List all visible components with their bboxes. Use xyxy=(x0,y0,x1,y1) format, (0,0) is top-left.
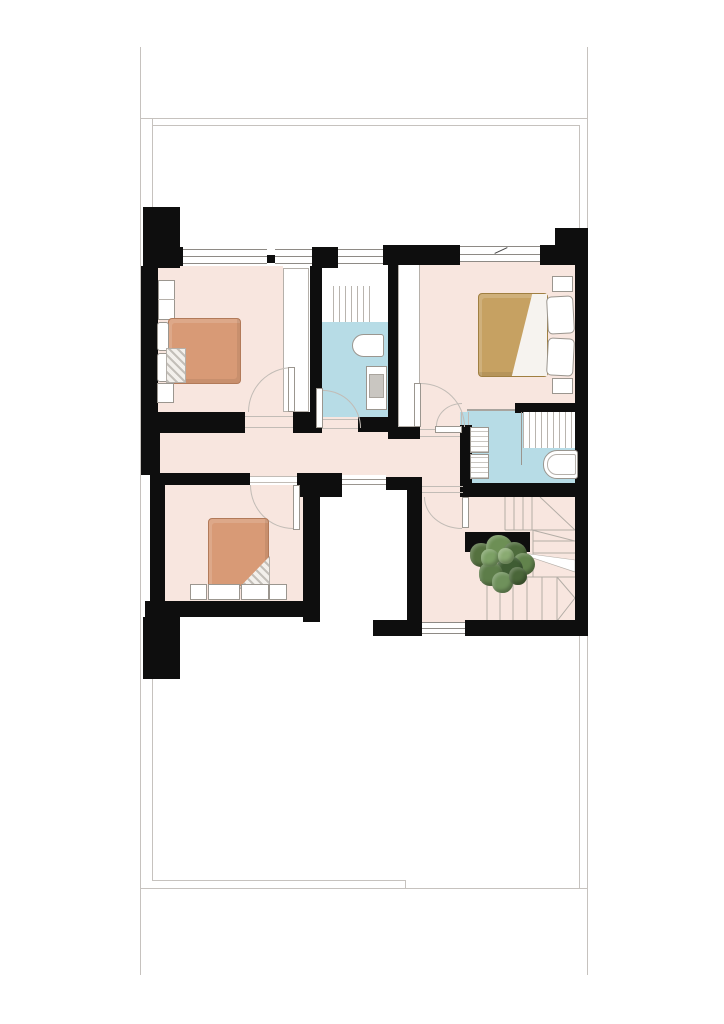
outline-top-inner xyxy=(152,125,580,126)
plant-foliage-blob xyxy=(509,567,527,585)
threshold-bedroom2 xyxy=(250,482,297,483)
wall-bedroom2-west xyxy=(150,473,165,603)
outline-bottom-outer xyxy=(140,888,588,889)
window-master xyxy=(460,246,540,262)
threshold-bedroom1 xyxy=(245,427,293,428)
outline-left-outer xyxy=(140,47,141,975)
vanity-sink xyxy=(470,454,489,479)
nightstand xyxy=(552,378,573,394)
plant-foliage-blob xyxy=(481,549,499,567)
nightstand xyxy=(552,276,573,292)
outline-bottom-inner xyxy=(152,880,405,881)
pillow xyxy=(546,295,575,334)
wall-bedroom2-east xyxy=(303,473,320,622)
door-leaf-landing xyxy=(462,497,469,528)
void-railing-line xyxy=(342,484,386,485)
shower xyxy=(333,286,373,322)
threshold-landing xyxy=(422,492,463,493)
wall-bedroom2-north xyxy=(150,473,250,485)
floor-plan xyxy=(0,0,724,1024)
threshold-bedroom1 xyxy=(245,416,293,417)
threshold-bath-center xyxy=(322,428,358,429)
threshold-bath-right xyxy=(468,412,469,425)
folded-blanket xyxy=(166,348,186,383)
partition-master-bath xyxy=(467,409,515,411)
pillow xyxy=(208,584,240,600)
washbasin xyxy=(352,334,384,357)
shower-partition xyxy=(521,412,522,465)
wall-void-east xyxy=(407,477,422,636)
outline-step xyxy=(405,880,406,889)
wall-east xyxy=(575,228,588,636)
plant-foliage-blob xyxy=(498,548,514,564)
shower xyxy=(523,412,575,448)
window-landing xyxy=(422,622,465,634)
wall-north-segment-3 xyxy=(383,245,460,265)
threshold-master xyxy=(420,436,460,437)
door-leaf-bath-right xyxy=(435,426,462,433)
closet xyxy=(158,280,175,320)
nightstand xyxy=(269,584,287,600)
window-bedroom1-b xyxy=(275,249,312,264)
nightstand xyxy=(190,584,207,600)
outline-top-outer xyxy=(140,118,588,119)
void-railing-line xyxy=(342,479,386,480)
void-railing xyxy=(342,475,386,489)
window-bathroom-center xyxy=(338,249,383,264)
nightstand xyxy=(157,383,174,403)
vanity-sink xyxy=(470,427,489,453)
window-bedroom1-a xyxy=(183,249,267,264)
wall-bedroom1-south-west xyxy=(158,412,245,433)
wall-stub-bottom-left xyxy=(143,617,180,679)
bathtub-inner xyxy=(547,454,576,475)
wall-south-segment-2 xyxy=(465,620,587,636)
void-open-below xyxy=(320,477,407,635)
plant xyxy=(465,533,529,595)
door-leaf-bedroom1 xyxy=(288,367,295,412)
wall-master-south-west xyxy=(388,427,420,439)
wall-bath-center-south xyxy=(358,417,388,432)
pillow xyxy=(157,322,169,351)
wall-void-north-east xyxy=(386,477,407,490)
door-leaf-bath-center xyxy=(316,388,323,428)
wall-south-segment-1 xyxy=(373,620,422,636)
door-leaf-master xyxy=(414,383,421,427)
wall-stair-north xyxy=(463,483,575,497)
wall-north-segment-4 xyxy=(540,245,580,265)
wall-north-segment-2 xyxy=(312,247,338,268)
wall-bedroom2-south xyxy=(145,601,315,617)
toilet-seat xyxy=(369,374,384,398)
wall-north-segment-1 xyxy=(155,247,183,266)
closet-divider xyxy=(158,299,175,300)
wall-bath-center-east xyxy=(388,247,398,427)
wall-left-hall xyxy=(141,433,160,475)
threshold-landing xyxy=(422,486,463,487)
door-leaf-bedroom2 xyxy=(293,485,300,530)
pillow xyxy=(546,337,575,376)
pillow xyxy=(241,584,269,600)
window-mullion-tick xyxy=(267,255,275,263)
threshold-bedroom2 xyxy=(250,476,297,477)
wall-left-bedroom1 xyxy=(141,266,158,433)
